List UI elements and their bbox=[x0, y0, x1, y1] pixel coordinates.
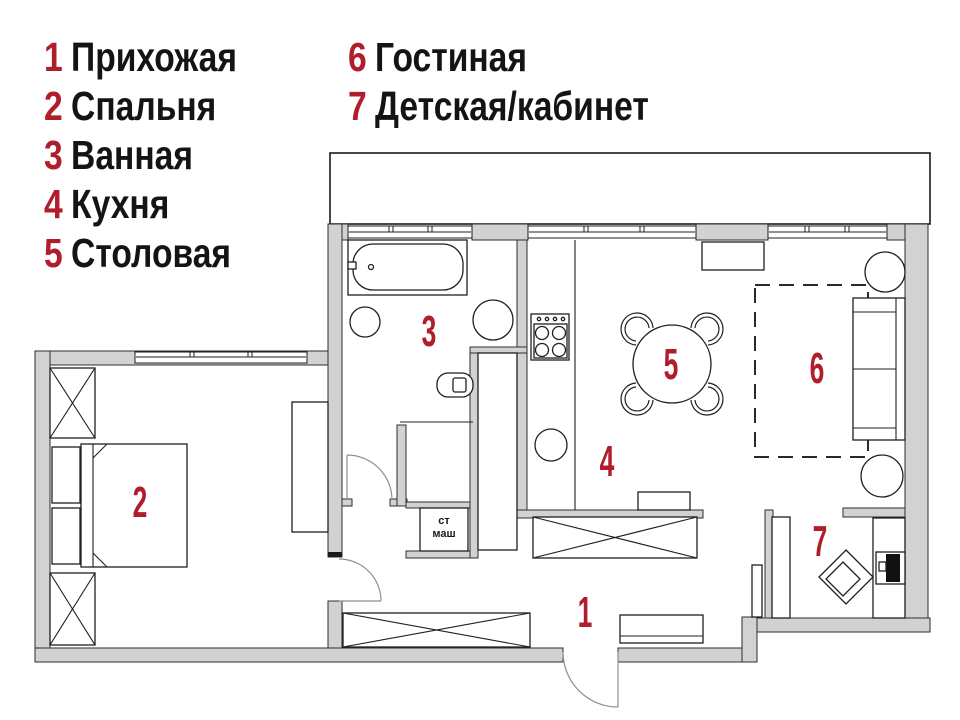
wall-washer-niche-bottom bbox=[406, 551, 478, 558]
radiator-icon bbox=[752, 565, 762, 617]
duct-shaft bbox=[478, 353, 517, 550]
door-jamb bbox=[328, 552, 342, 557]
room-label-dining: 5 bbox=[664, 339, 679, 389]
cabinet-icon bbox=[702, 242, 764, 270]
dresser-icon bbox=[292, 402, 328, 532]
stove-burner bbox=[536, 344, 549, 357]
stove-burner bbox=[536, 327, 549, 340]
room-label-bedroom: 2 bbox=[133, 477, 148, 527]
washbasin-icon bbox=[473, 300, 513, 340]
armchair-icon bbox=[865, 252, 905, 292]
wardrobe-icon bbox=[772, 517, 790, 618]
bedroom-furniture bbox=[50, 368, 328, 645]
washing-machine-label-2: маш bbox=[432, 528, 455, 540]
wall-washer-niche-left bbox=[397, 425, 406, 506]
bench-icon bbox=[620, 615, 703, 643]
floor-plan-page: 1 Прихожая 2 Спальня 3 Ванная 4 Кухня 5 … bbox=[0, 0, 960, 720]
wall-kitchen-left bbox=[517, 240, 527, 518]
wall-bathroom-bedroom bbox=[328, 224, 342, 557]
kitchen-bench bbox=[638, 492, 690, 510]
wall-right-outer bbox=[905, 224, 928, 632]
bathtub-faucet bbox=[348, 262, 356, 269]
door-arc-icon bbox=[339, 559, 381, 601]
wall-left-outer bbox=[35, 351, 50, 662]
room-label-kids-office: 7 bbox=[813, 516, 828, 566]
floor-plan-drawing: ст маш bbox=[0, 0, 960, 720]
wall-washer-niche-top bbox=[406, 502, 478, 508]
washing-machine-label-1: ст bbox=[438, 515, 450, 527]
wardrobe-icon bbox=[50, 573, 95, 645]
wall-bottom-right bbox=[757, 618, 930, 632]
stove-burner bbox=[553, 344, 566, 357]
stove-burner bbox=[553, 327, 566, 340]
kitchen-sink-icon bbox=[535, 429, 567, 461]
washbasin-icon bbox=[350, 307, 380, 337]
toilet-tank bbox=[453, 378, 466, 392]
living-room-furniture bbox=[702, 242, 905, 497]
wardrobe-icon bbox=[533, 517, 697, 558]
room-label-bathroom: 3 bbox=[422, 306, 437, 356]
wall-window-pier bbox=[696, 224, 768, 240]
balcony bbox=[330, 153, 930, 224]
door-arc-icon bbox=[563, 652, 618, 707]
wardrobe-icon bbox=[343, 613, 530, 647]
wall-bottom-entry bbox=[618, 648, 742, 662]
room-label-kitchen: 4 bbox=[600, 436, 615, 486]
windows bbox=[135, 226, 887, 363]
room-label-living: 6 bbox=[810, 343, 825, 393]
nightstand-icon bbox=[52, 447, 80, 503]
wall-bathroom-bottom bbox=[342, 499, 352, 506]
wardrobe-icon bbox=[50, 368, 95, 438]
wall-living-bottom bbox=[843, 508, 905, 517]
hallway-furniture bbox=[343, 517, 703, 647]
wall-window-pier bbox=[472, 224, 528, 240]
wall-bottom-step bbox=[742, 617, 757, 662]
door-arc-icon bbox=[347, 455, 392, 500]
room-label-hallway: 1 bbox=[578, 587, 593, 637]
armchair-icon bbox=[861, 455, 903, 497]
washing-machine-icon: ст маш bbox=[420, 508, 468, 551]
kids-office-furniture bbox=[752, 517, 905, 618]
nightstand-icon bbox=[52, 508, 80, 564]
bathtub-drain bbox=[369, 265, 374, 270]
wall-bottom-left bbox=[35, 648, 563, 662]
wall-shaft-top bbox=[470, 347, 527, 353]
